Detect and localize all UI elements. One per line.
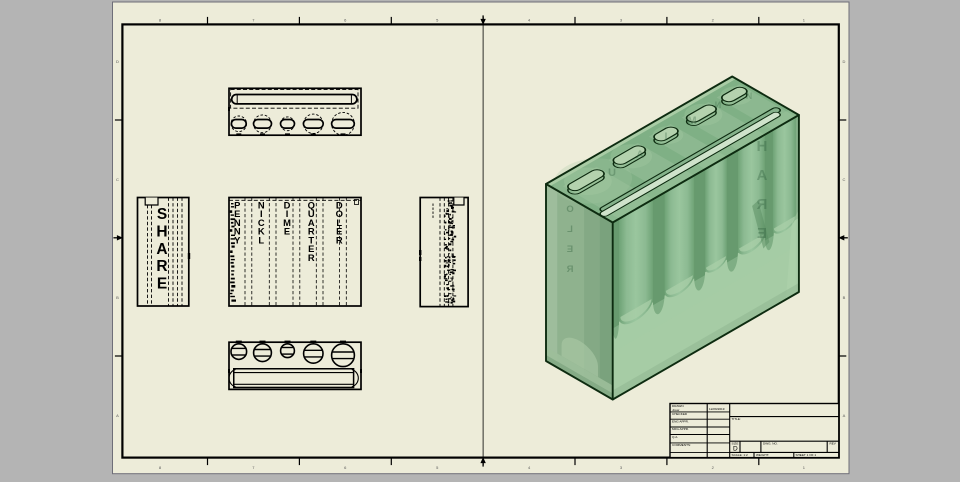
svg-text:WEIGHT:: WEIGHT:	[756, 453, 769, 457]
svg-text:SCALE: 1:2: SCALE: 1:2	[732, 453, 748, 457]
svg-text:SHEET 1 OF 1: SHEET 1 OF 1	[796, 453, 817, 457]
svg-text:D: D	[843, 59, 846, 64]
svg-text:A: A	[636, 149, 644, 161]
svg-text:DOLER: DOLER	[336, 199, 343, 245]
svg-text:B: B	[116, 295, 119, 300]
svg-text:M: M	[687, 115, 696, 127]
svg-text:И: И	[746, 91, 752, 101]
svg-text:MFG APPR.: MFG APPR.	[672, 427, 689, 431]
svg-text:QUARTER: QUARTER	[308, 199, 315, 262]
svg-text:D: D	[116, 59, 119, 64]
svg-text:C: C	[843, 177, 846, 182]
svg-text:12/29/2019: 12/29/2019	[709, 407, 725, 411]
svg-text:ENG APPR.: ENG APPR.	[672, 419, 689, 423]
svg-text:NICKL: NICKL	[258, 199, 265, 245]
svg-text:PENNY: PENNY	[234, 199, 241, 245]
svg-text:R: R	[756, 196, 767, 213]
svg-text:E: E	[757, 225, 767, 242]
svg-text:TITLE:: TITLE:	[732, 417, 741, 421]
svg-text:Q.A.: Q.A.	[672, 435, 678, 439]
svg-text:A: A	[116, 413, 119, 418]
svg-text:DIME: DIME	[283, 199, 291, 236]
svg-text:L: L	[567, 224, 573, 235]
svg-text:CHECKED: CHECKED	[672, 412, 688, 416]
svg-text:H: H	[757, 138, 768, 155]
svg-text:B: B	[843, 295, 846, 300]
svg-text:COMMENTS:: COMMENTS:	[672, 443, 691, 447]
svg-text:REV: REV	[830, 442, 837, 446]
svg-text:E: E	[567, 244, 573, 255]
svg-text:DWG. NO.: DWG. NO.	[763, 442, 778, 446]
svg-text:A: A	[756, 167, 767, 184]
svg-text:O: O	[566, 204, 573, 215]
svg-text:C: C	[116, 177, 119, 182]
svg-text:N: N	[715, 100, 722, 110]
svg-text:U: U	[608, 167, 616, 179]
svg-text:R: R	[566, 264, 573, 275]
svg-text:SHARE: SHARE	[156, 206, 167, 293]
svg-text:I: I	[664, 131, 667, 143]
svg-text:D: D	[733, 446, 738, 453]
svg-text:A: A	[843, 413, 846, 418]
